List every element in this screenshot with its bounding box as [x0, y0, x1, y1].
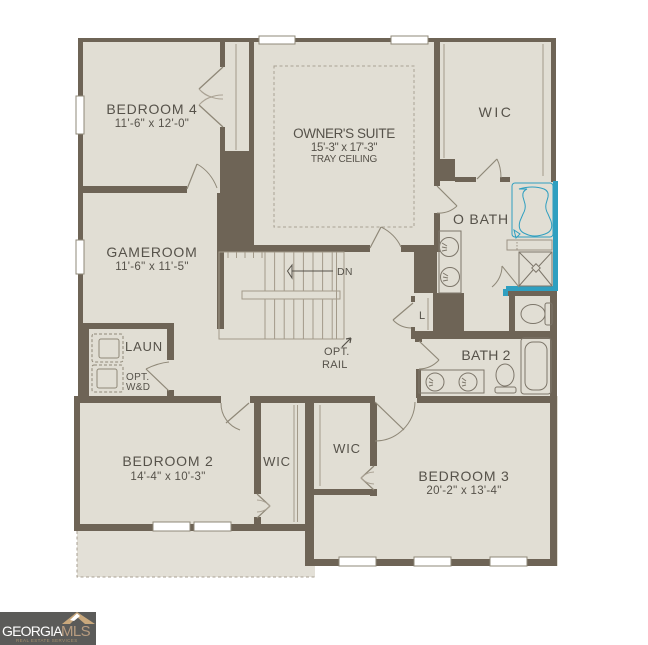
svg-text:O BATH: O BATH	[453, 211, 509, 227]
svg-text:GAMEROOM: GAMEROOM	[106, 244, 197, 260]
svg-text:15'-3" x 17'-3": 15'-3" x 17'-3"	[311, 142, 377, 154]
svg-text:BEDROOM 3: BEDROOM 3	[418, 468, 509, 484]
svg-text:TRAY CEILING: TRAY CEILING	[311, 154, 378, 165]
svg-text:11'-6" x 11'-5": 11'-6" x 11'-5"	[115, 261, 189, 273]
svg-text:REAL ESTATE SERVICES: REAL ESTATE SERVICES	[16, 638, 78, 643]
svg-text:GEORGIA: GEORGIA	[2, 623, 63, 639]
svg-text:W&D: W&D	[126, 382, 150, 393]
svg-text:BEDROOM 4: BEDROOM 4	[106, 101, 197, 117]
svg-text:11'-6" x 12'-0": 11'-6" x 12'-0"	[115, 118, 189, 130]
svg-text:OWNER'S SUITE: OWNER'S SUITE	[293, 126, 395, 141]
svg-text:DN: DN	[337, 266, 353, 278]
svg-text:WIC: WIC	[263, 454, 291, 469]
svg-text:14'-4" x 10'-3": 14'-4" x 10'-3"	[130, 471, 205, 483]
svg-text:WIC: WIC	[479, 104, 514, 120]
svg-text:OPT.: OPT.	[324, 346, 350, 358]
svg-text:BEDROOM 2: BEDROOM 2	[122, 453, 213, 469]
svg-text:L: L	[419, 310, 425, 322]
svg-text:LAUN: LAUN	[125, 339, 163, 354]
svg-text:RAIL: RAIL	[322, 359, 348, 371]
svg-text:20'-2" x 13'-4": 20'-2" x 13'-4"	[426, 485, 501, 497]
svg-text:WIC: WIC	[333, 441, 361, 456]
svg-text:BATH 2: BATH 2	[461, 347, 510, 363]
